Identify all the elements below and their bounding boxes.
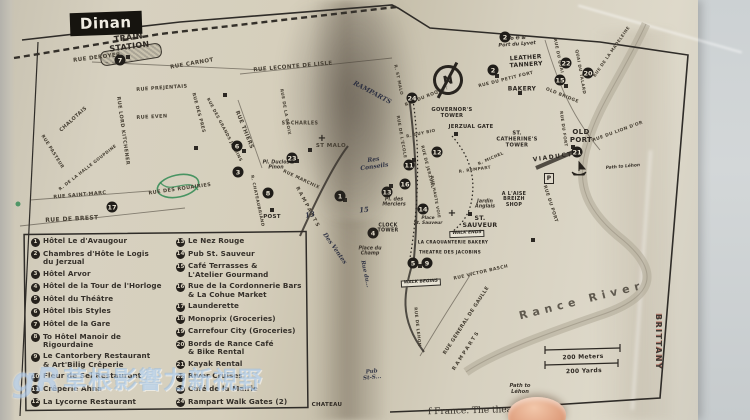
legend-column-right: 13Le Nez Rouge14Pub St. Sauveur15Café Te… xyxy=(176,237,308,410)
map-marker: 15 xyxy=(555,75,566,86)
legend-item-number: 9 xyxy=(31,353,40,362)
legend-item: 3Hôtel Arvor xyxy=(31,270,179,280)
photo-of-dinan-map: Dinan N P TRAIN STATIONRUE DEROYERRUE CA… xyxy=(0,0,750,420)
church-icon: + xyxy=(318,134,326,144)
legend-item-label: Monoprix (Groceries) xyxy=(188,315,276,325)
legend-item-number: 14 xyxy=(176,250,185,259)
legend-item-number: 2 xyxy=(31,250,40,259)
legend-item: 7Hôtel de la Gare xyxy=(31,320,179,330)
legend-item-number: 16 xyxy=(176,283,185,292)
building-square xyxy=(242,149,246,153)
legend-item-number: 8 xyxy=(31,333,40,342)
map-marker: 5 xyxy=(408,258,419,269)
legend-item-label: Crêperie Ahna xyxy=(43,385,102,395)
legend-item-label: River Cruises xyxy=(188,372,243,382)
map-marker: 9 xyxy=(422,258,433,269)
building-square xyxy=(308,148,312,152)
map-marker: 20 xyxy=(583,68,594,79)
legend-item: 12La Lycorne Restaurant xyxy=(31,398,179,408)
map-marker: 2 xyxy=(488,65,499,76)
legend-item: 2Chambres d'Hôte le Logis du Jerzual xyxy=(31,250,179,267)
building-square xyxy=(194,146,198,150)
legend-item: 17Launderette xyxy=(176,302,308,312)
map-marker: 7 xyxy=(115,55,126,66)
building-square xyxy=(564,84,568,88)
legend-item-label: To Hôtel Manoir de Rigourdaine xyxy=(43,333,121,350)
legend-item-label: Carrefour City (Groceries) xyxy=(188,327,296,337)
legend-item-label: La Lycorne Restaurant xyxy=(43,398,136,408)
map-marker: 13 xyxy=(382,187,393,198)
legend-item: 14Pub St. Sauveur xyxy=(176,250,308,260)
map-marker: 1 xyxy=(335,191,346,202)
church-icon: + xyxy=(448,209,456,219)
legend-item: 20Bords de Rance Café & Bike Rental xyxy=(176,340,308,357)
legend-item-number: 12 xyxy=(31,398,40,407)
legend-item: 8To Hôtel Manoir de Rigourdaine xyxy=(31,333,179,350)
legend-item: 5Hôtel du Théâtre xyxy=(31,295,179,305)
legend-item: 4Hôtel de la Tour de l'Horloge xyxy=(31,282,179,292)
building-square xyxy=(531,238,535,242)
legend-item-label: Pub St. Sauveur xyxy=(188,250,255,260)
legend-column-left: 1Hôtel Le d'Avaugour2Chambres d'Hôte le … xyxy=(31,237,179,410)
parking-icon: P xyxy=(544,173,554,184)
legend-item-number: 4 xyxy=(31,283,40,292)
legend-item-number: 10 xyxy=(31,373,40,382)
map-marker: 3 xyxy=(233,167,244,178)
legend-item-label: Hôtel de la Tour de l'Horloge xyxy=(43,282,162,292)
legend-item-number: 5 xyxy=(31,295,40,304)
map-marker: 21 xyxy=(572,147,583,158)
building-square xyxy=(223,93,227,97)
legend-item-label: Le Nez Rouge xyxy=(188,237,244,247)
legend-item-number: 21 xyxy=(176,360,185,369)
map-marker: 4 xyxy=(368,228,379,239)
legend-item: 6Hôtel Ibis Styles xyxy=(31,307,179,317)
legend-item-number: 18 xyxy=(176,315,185,324)
map-marker: 17 xyxy=(107,202,118,213)
legend-item-label: Bords de Rance Café & Bike Rental xyxy=(188,340,274,357)
building-square xyxy=(468,212,472,216)
legend-item: 18Monoprix (Groceries) xyxy=(176,315,308,325)
page-edge-stamp: BRITTANY xyxy=(654,314,663,370)
legend-item: 15Café Terrasses & L'Atelier Gourmand xyxy=(176,262,308,279)
legend-item: 10Fleur de Sel Restaurant xyxy=(31,372,179,382)
legend-item-label: Fleur de Sel Restaurant xyxy=(43,372,141,382)
legend-item: 22River Cruises xyxy=(176,372,308,382)
legend-item: 24Rampart Walk Gates (2) xyxy=(176,398,308,408)
map-marker: 23 xyxy=(287,153,298,164)
map-marker: 12 xyxy=(432,147,443,158)
legend-item: 1Hôtel Le d'Avaugour xyxy=(31,237,179,247)
legend-item-number: 20 xyxy=(176,340,185,349)
map-marker: 6 xyxy=(232,141,243,152)
building-square xyxy=(270,208,274,212)
paper-left-edge xyxy=(0,0,15,420)
legend-item-number: 22 xyxy=(176,373,185,382)
map-marker: 2 xyxy=(500,32,511,43)
legend-item: 19Carrefour City (Groceries) xyxy=(176,327,308,337)
legend-item-label: Rampart Walk Gates (2) xyxy=(188,398,287,408)
legend-item-number: 15 xyxy=(176,263,185,272)
map-title: Dinan xyxy=(70,11,142,36)
legend-item-label: Hôtel Ibis Styles xyxy=(43,307,111,317)
map-marker: 24 xyxy=(407,93,418,104)
legend-item-number: 11 xyxy=(31,385,40,394)
building-square xyxy=(126,55,130,59)
legend-item-number: 3 xyxy=(31,270,40,279)
legend-item-number: 1 xyxy=(31,238,40,247)
legend-item-label: Chambres d'Hôte le Logis du Jerzual xyxy=(43,250,149,267)
legend-item-label: Le Cantorbery Restaurant & Art'Bilig Crê… xyxy=(43,352,150,369)
legend-item-number: 17 xyxy=(176,303,185,312)
legend-item-label: Hôtel Arvor xyxy=(43,270,91,280)
legend-item-number: 23 xyxy=(176,385,185,394)
legend-item-label: Launderette xyxy=(188,302,239,312)
legend-item: 21Kayak Rental xyxy=(176,360,308,370)
legend-item: 13Le Nez Rouge xyxy=(176,237,308,247)
legend-item-label: Rue de la Cordonnerie Bars & La Cohue Ma… xyxy=(188,282,301,299)
legend-item-number: 24 xyxy=(176,398,185,407)
legend-item-label: Hôtel du Théâtre xyxy=(43,295,113,305)
legend-item-number: 7 xyxy=(31,320,40,329)
legend-item-label: Café de la Mairie xyxy=(188,385,258,395)
legend-item-label: Hôtel de la Gare xyxy=(43,320,110,330)
building-square xyxy=(454,132,458,136)
legend-item-number: 6 xyxy=(31,308,40,317)
legend-item-number: 13 xyxy=(176,238,185,247)
legend-item: 16Rue de la Cordonnerie Bars & La Cohue … xyxy=(176,282,308,299)
map-marker: 16 xyxy=(400,179,411,190)
legend-item: 23Café de la Mairie xyxy=(176,385,308,395)
map-marker: 22 xyxy=(561,58,572,69)
legend-item: 11Crêperie Ahna xyxy=(31,385,179,395)
building-square xyxy=(518,91,522,95)
map-marker: 8 xyxy=(263,188,274,199)
legend-item-label: Hôtel Le d'Avaugour xyxy=(43,237,127,247)
legend-item: 9Le Cantorbery Restaurant & Art'Bilig Cr… xyxy=(31,352,179,369)
legend-item-number: 19 xyxy=(176,328,185,337)
legend-item-label: Café Terrasses & L'Atelier Gourmand xyxy=(188,262,268,279)
legend-item-label: Kayak Rental xyxy=(188,360,243,370)
map-marker: 14 xyxy=(418,204,429,215)
map-marker: 11 xyxy=(404,160,415,171)
